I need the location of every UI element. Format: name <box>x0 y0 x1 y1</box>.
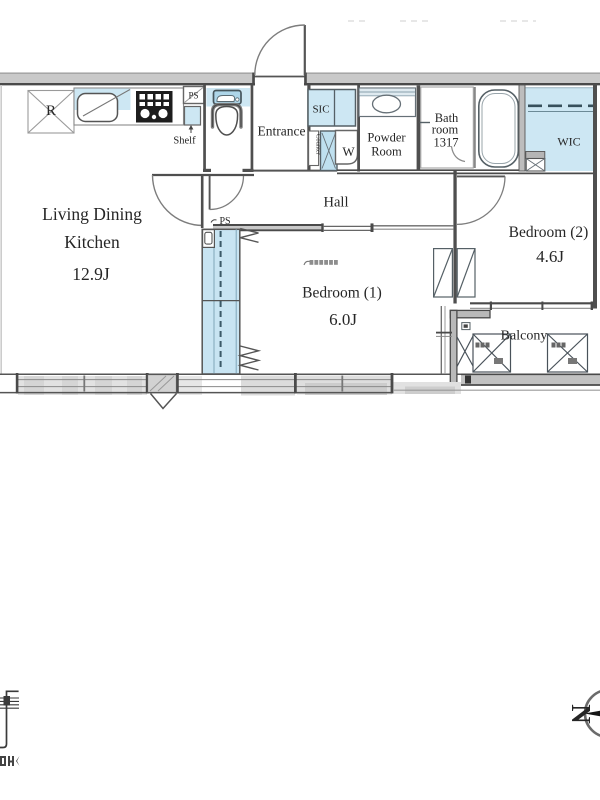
svg-text:R: R <box>46 103 56 119</box>
svg-text:Bedroom (1): Bedroom (1) <box>302 285 382 302</box>
svg-text:N: N <box>566 704 596 724</box>
svg-text:Room: Room <box>371 145 402 159</box>
svg-text:1317: 1317 <box>434 136 459 150</box>
svg-text:Bedroom (2): Bedroom (2) <box>509 224 589 241</box>
svg-text:Entrance: Entrance <box>258 124 306 139</box>
svg-text:room: room <box>432 123 459 137</box>
svg-text:4.6J: 4.6J <box>536 247 564 266</box>
svg-text:Powder: Powder <box>367 131 406 145</box>
svg-text:Balcony: Balcony <box>501 329 548 344</box>
svg-text:PS: PS <box>188 91 198 101</box>
svg-text:Shelf: Shelf <box>173 136 196 147</box>
svg-text:W: W <box>342 144 355 159</box>
svg-text:WIC: WIC <box>557 135 580 149</box>
svg-text:Kitchen: Kitchen <box>64 232 120 252</box>
svg-text:Hall: Hall <box>324 195 349 211</box>
svg-text:Living Dining: Living Dining <box>42 204 142 224</box>
svg-text:6.0J: 6.0J <box>329 310 357 329</box>
svg-text:PS: PS <box>219 216 230 227</box>
svg-text:SIC: SIC <box>312 104 329 116</box>
svg-text:12.9J: 12.9J <box>72 264 110 284</box>
